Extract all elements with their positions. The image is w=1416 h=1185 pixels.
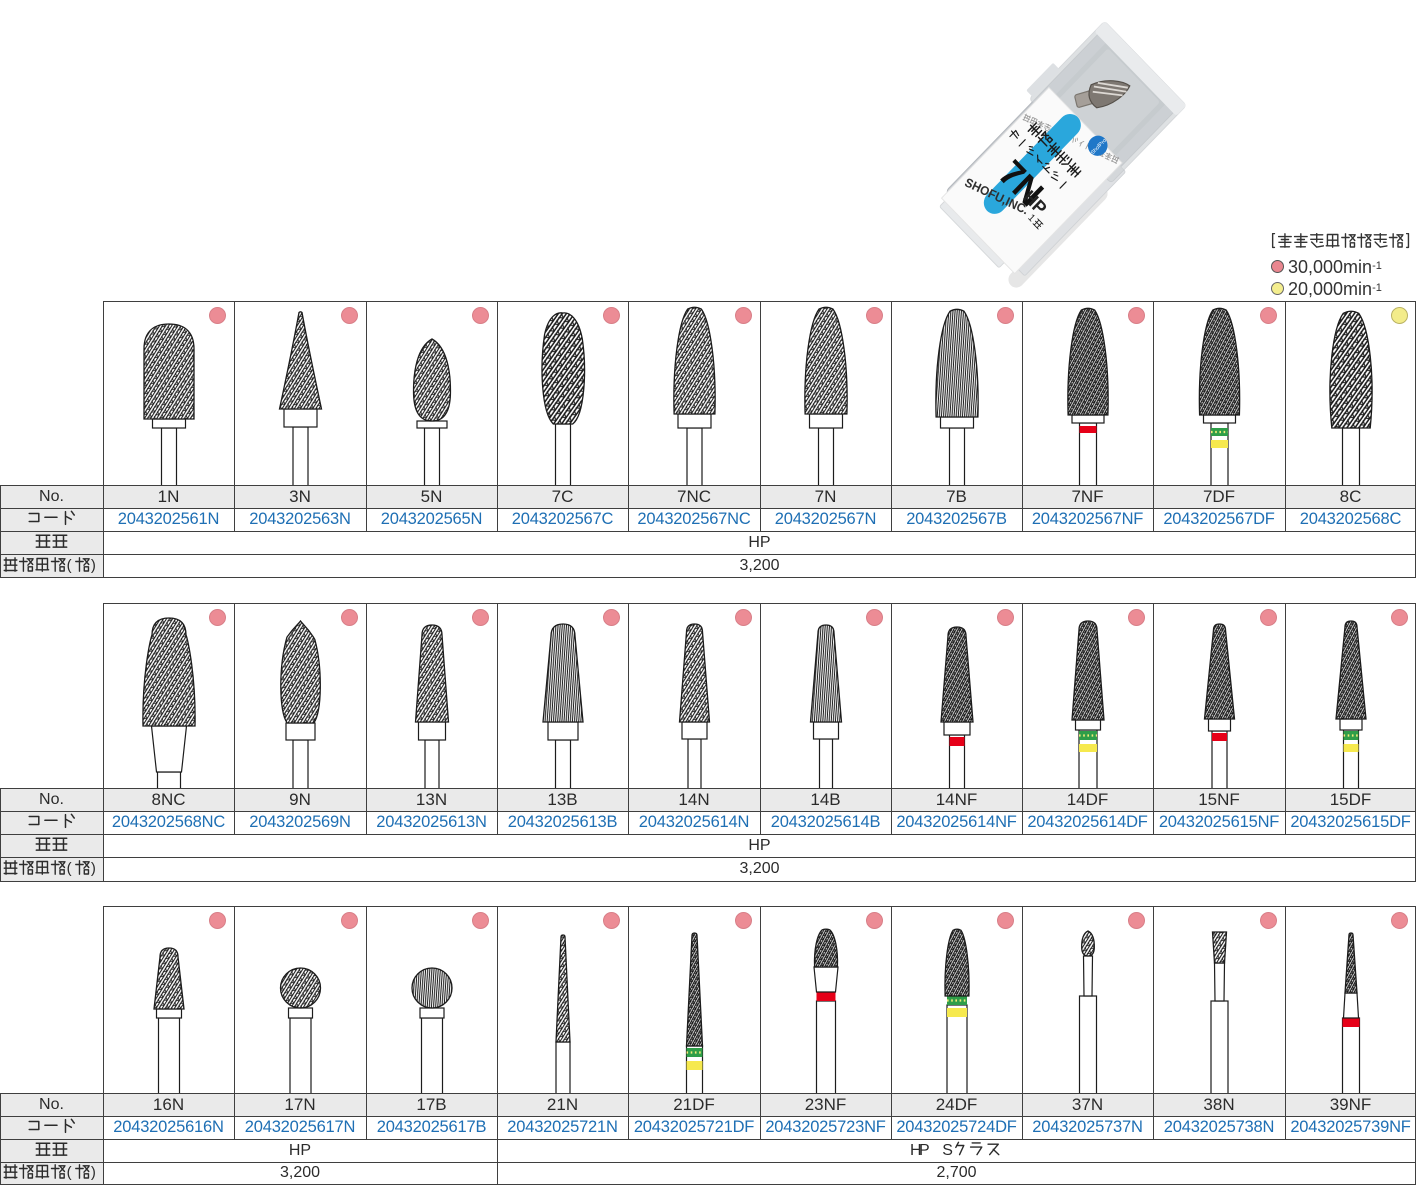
svg-text:): ): [91, 1164, 96, 1181]
svg-text:): ): [91, 557, 96, 574]
svg-text:(: (: [67, 860, 72, 877]
svg-text:(: (: [67, 557, 72, 574]
svg-text:S: S: [943, 1142, 954, 1159]
svg-text:): ): [91, 860, 96, 877]
svg-text:P: P: [919, 1142, 930, 1159]
svg-text:(: (: [67, 1164, 72, 1181]
